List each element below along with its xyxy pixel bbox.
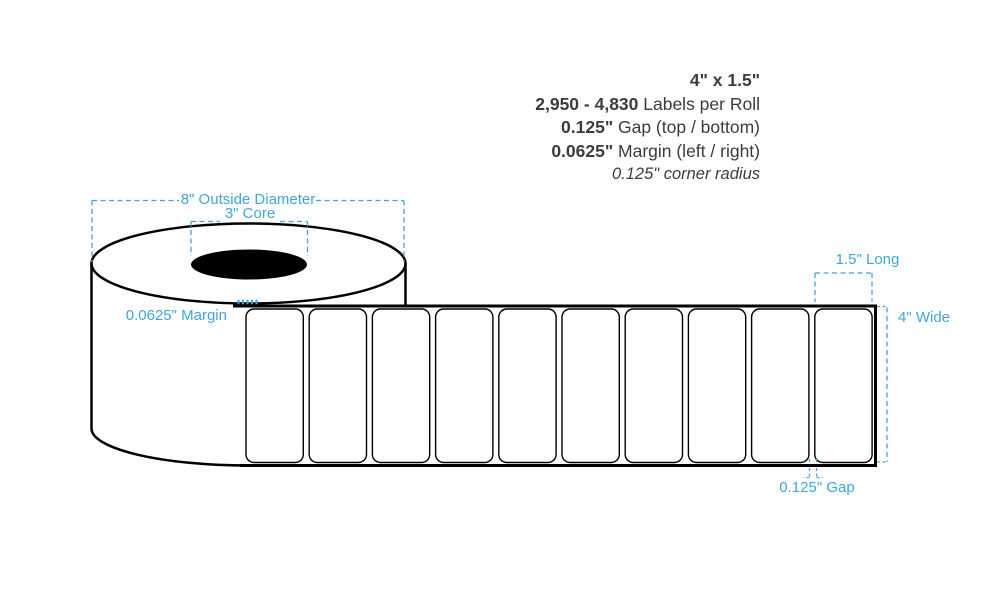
spec-margin-text: Margin (left / right) [613,141,760,161]
spec-gap-value: 0.125" [561,117,613,137]
label-cell [372,309,429,463]
spec-labels-per-roll-value: 2,950 - 4,830 [535,94,638,114]
label-cell [688,309,745,463]
spec-size: 4" x 1.5" [430,69,760,93]
label-cell [562,309,619,463]
spec-block: 4" x 1.5" 2,950 - 4,830 Labels per Roll … [430,69,760,186]
roll-core [191,250,307,280]
core-label: 3" Core [200,206,300,222]
label-length-label: 1.5" Long [817,252,918,268]
spec-corner-radius: 0.125" corner radius [430,163,760,186]
spec-margin-value: 0.0625" [551,141,613,161]
spec-gap: 0.125" Gap (top / bottom) [430,116,760,140]
label-cell [815,309,872,463]
spec-gap-text: Gap (top / bottom) [613,117,760,137]
label-cell [309,309,366,463]
label-roll-diagram: 8" Outside Diameter 3" Core 0.0625" Marg… [0,0,1006,600]
label-cell [246,309,303,463]
label-cell [752,309,809,463]
label-cell [499,309,556,463]
roll-width-label: 4" Wide [898,310,950,326]
spec-margin: 0.0625" Margin (left / right) [430,140,760,164]
spec-labels-per-roll: 2,950 - 4,830 Labels per Roll [430,93,760,117]
label-cell [625,309,682,463]
spec-labels-per-roll-text: Labels per Roll [638,94,760,114]
margin-label: 0.0625" Margin [107,308,227,324]
label-cell [436,309,493,463]
long-dim-lines [815,273,872,302]
label-gap-label: 0.125" Gap [757,480,877,496]
wide-dim-lines [877,307,887,463]
